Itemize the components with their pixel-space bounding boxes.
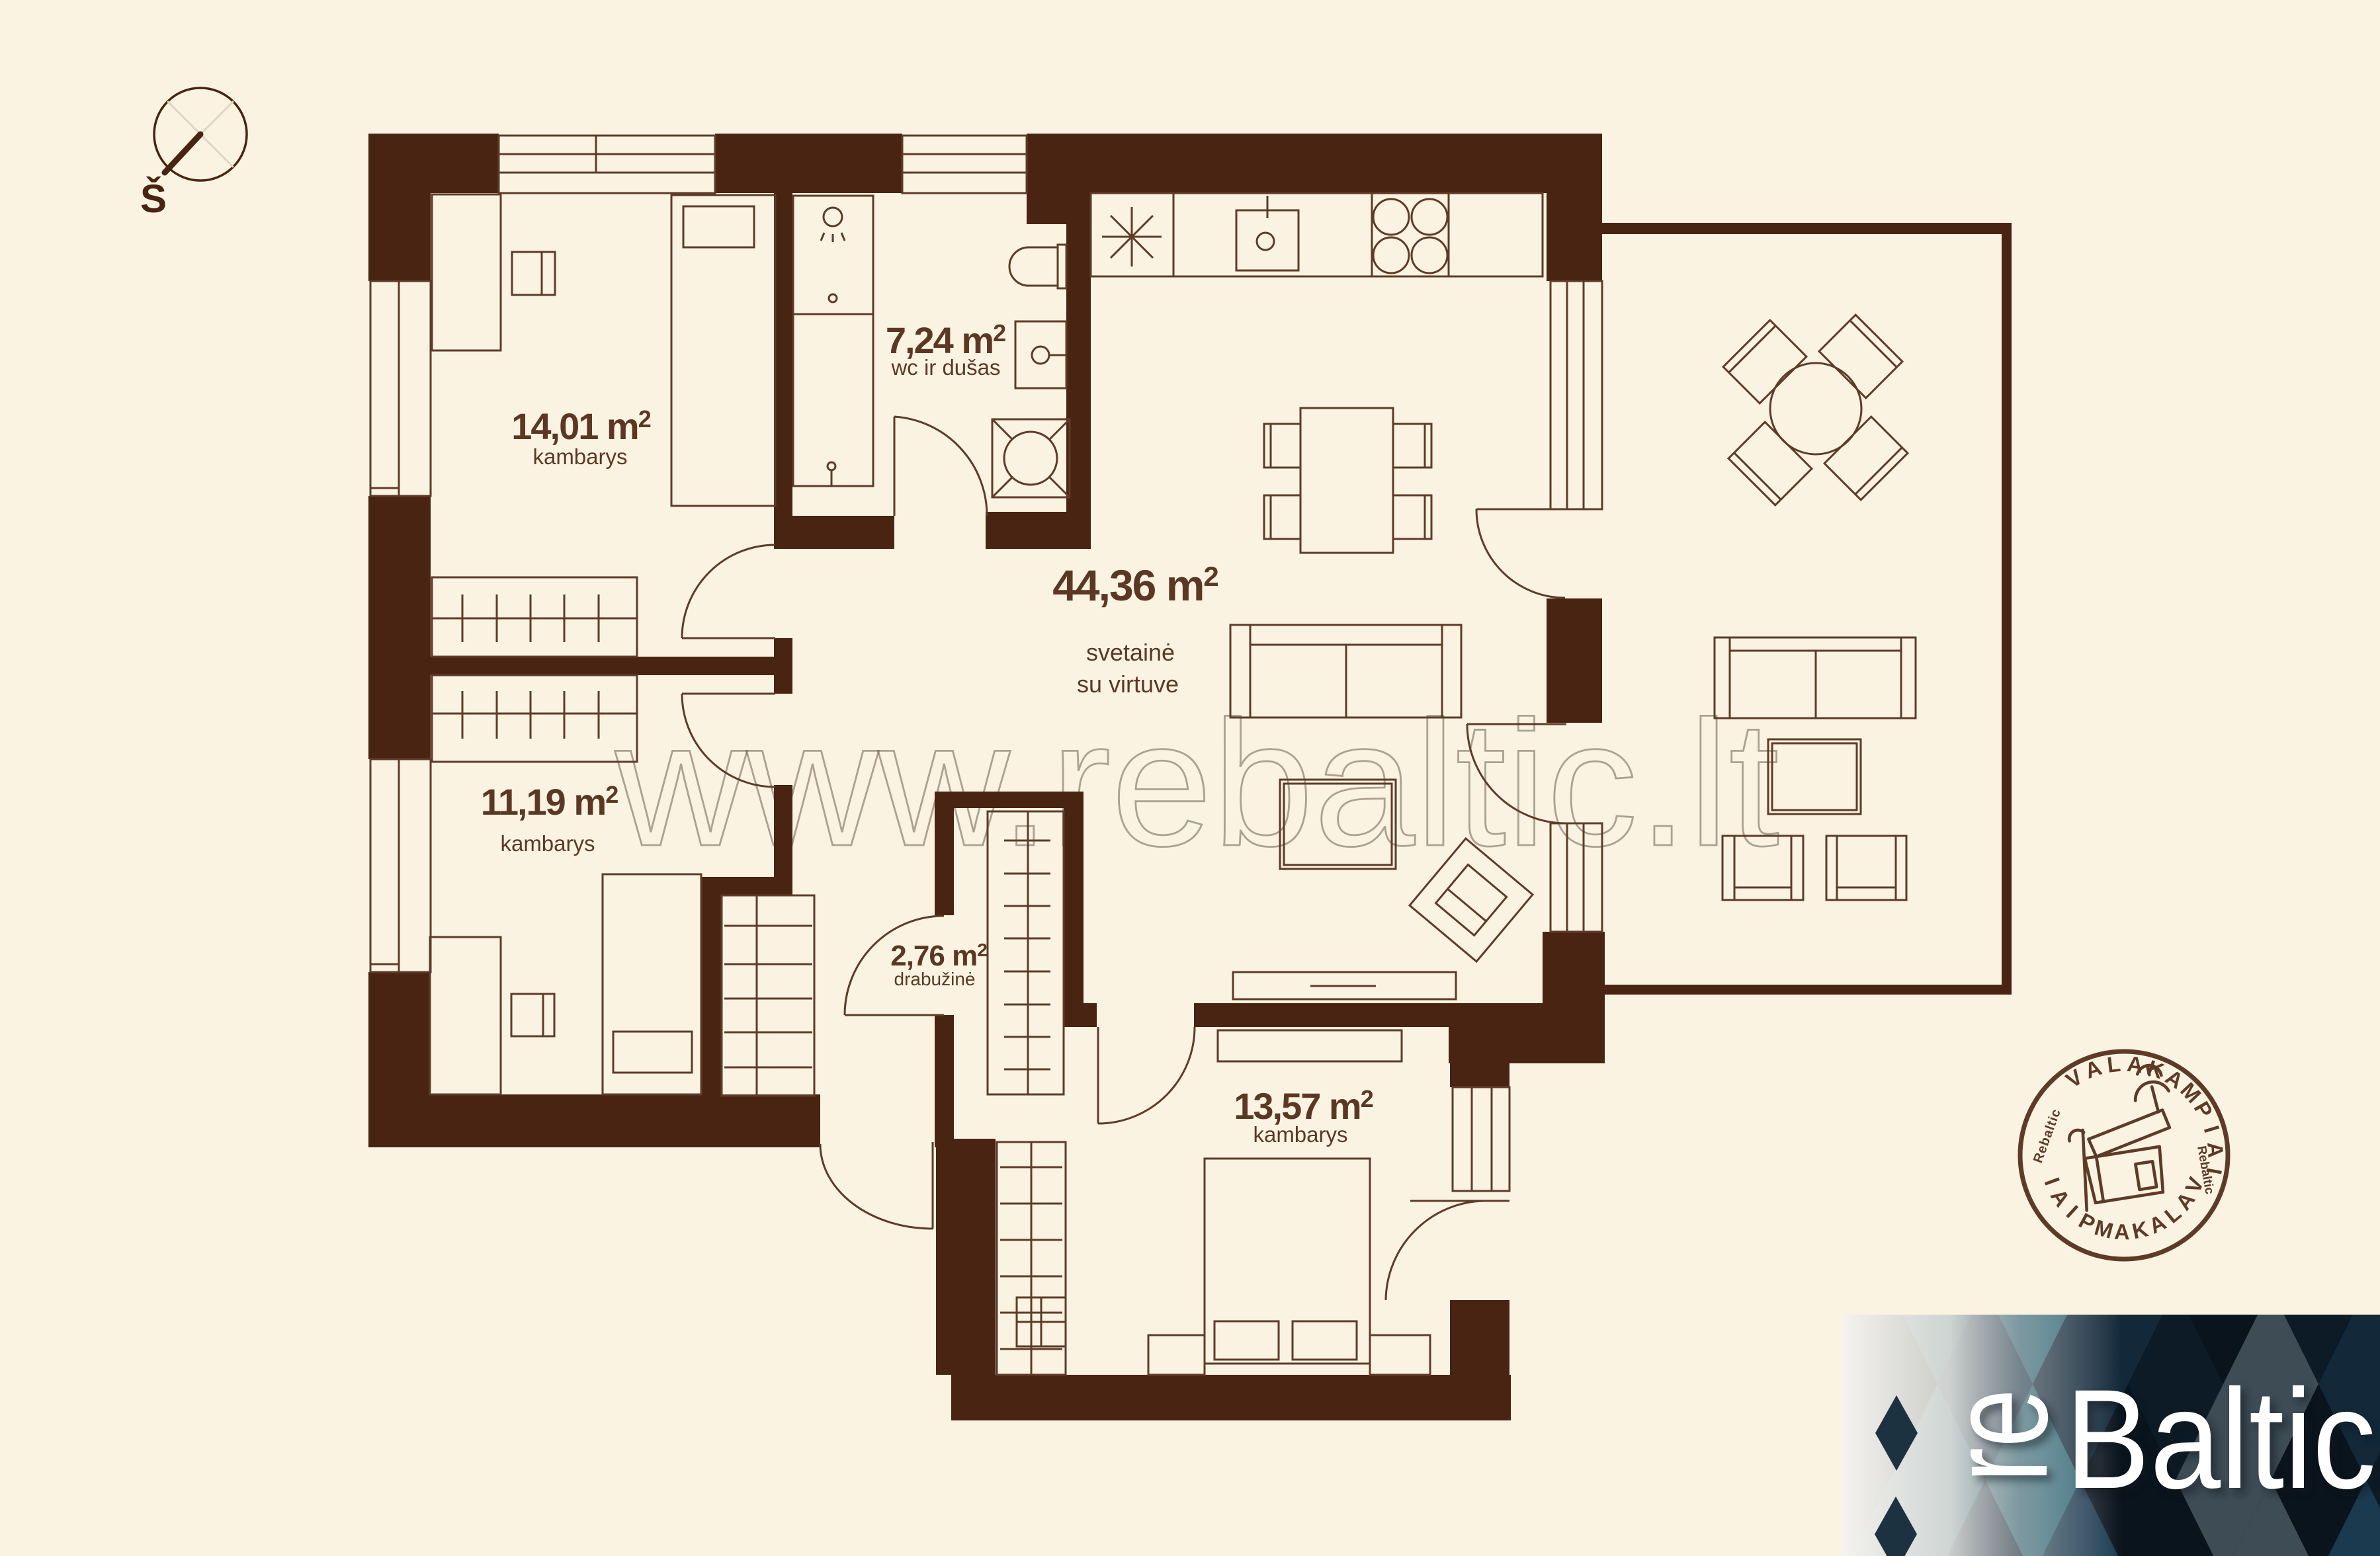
svg-text:svetainė: svetainė — [1086, 639, 1175, 666]
svg-text:kambarys: kambarys — [532, 444, 627, 469]
svg-text:kambarys: kambarys — [1253, 1122, 1347, 1147]
svg-text:wc ir dušas: wc ir dušas — [890, 355, 1000, 380]
svg-text:11,19 m2: 11,19 m2 — [481, 781, 618, 823]
svg-text:13,57 m2: 13,57 m2 — [1234, 1085, 1373, 1127]
svg-text:drabužinė: drabužinė — [894, 969, 976, 989]
svg-text:A: A — [2114, 1219, 2131, 1245]
svg-text:2,76 m2: 2,76 m2 — [890, 940, 987, 972]
svg-text:L: L — [2105, 1051, 2121, 1077]
svg-text:Š: Š — [140, 177, 167, 221]
svg-text:re: re — [1919, 1389, 2077, 1483]
svg-text:14,01 m2: 14,01 m2 — [511, 405, 651, 447]
svg-text:su virtuve: su virtuve — [1077, 671, 1179, 698]
svg-text:Baltic: Baltic — [2065, 1360, 2376, 1518]
svg-text:A: A — [2126, 1051, 2145, 1078]
svg-text:44,36 m2: 44,36 m2 — [1052, 561, 1218, 610]
svg-text:kambarys: kambarys — [500, 831, 595, 856]
